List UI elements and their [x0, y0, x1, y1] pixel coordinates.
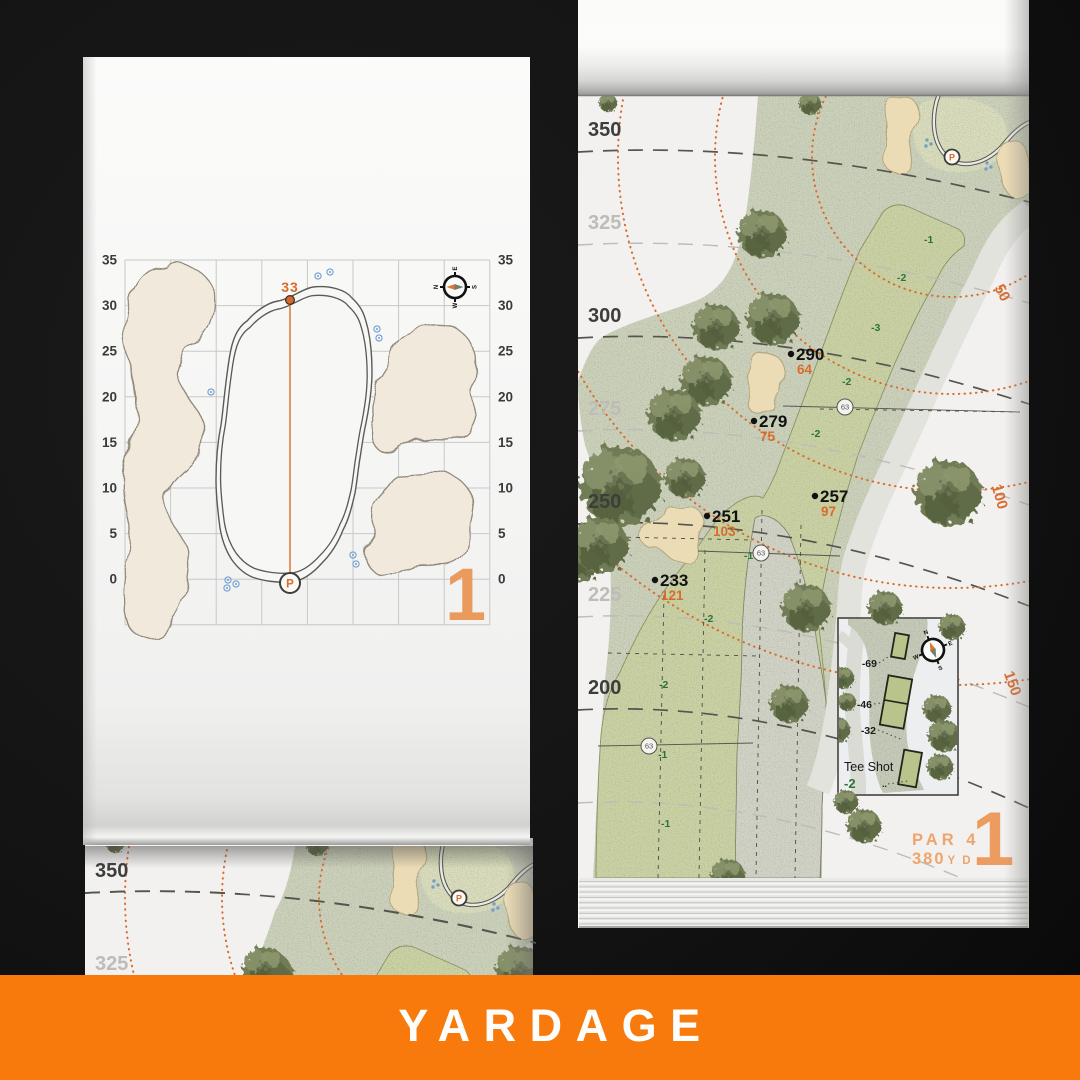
svg-text:0: 0	[109, 572, 117, 587]
svg-text:5: 5	[109, 526, 117, 541]
svg-text:25: 25	[102, 344, 118, 359]
svg-text:33: 33	[281, 279, 299, 295]
svg-text:25: 25	[498, 344, 514, 359]
svg-text:P: P	[286, 579, 294, 591]
svg-text:15: 15	[102, 435, 118, 450]
svg-text:35: 35	[102, 253, 118, 268]
svg-text:5: 5	[498, 526, 506, 541]
svg-text:YARDAGE: YARDAGE	[398, 1000, 713, 1051]
svg-text:10: 10	[102, 481, 117, 496]
svg-text:10: 10	[498, 481, 513, 496]
svg-text:20: 20	[498, 389, 513, 404]
svg-text:20: 20	[102, 389, 117, 404]
svg-text:30: 30	[102, 298, 117, 313]
svg-text:15: 15	[498, 435, 514, 450]
svg-text:0: 0	[498, 572, 506, 587]
svg-text:35: 35	[498, 253, 514, 268]
svg-text:1: 1	[445, 553, 486, 636]
svg-text:30: 30	[498, 298, 513, 313]
